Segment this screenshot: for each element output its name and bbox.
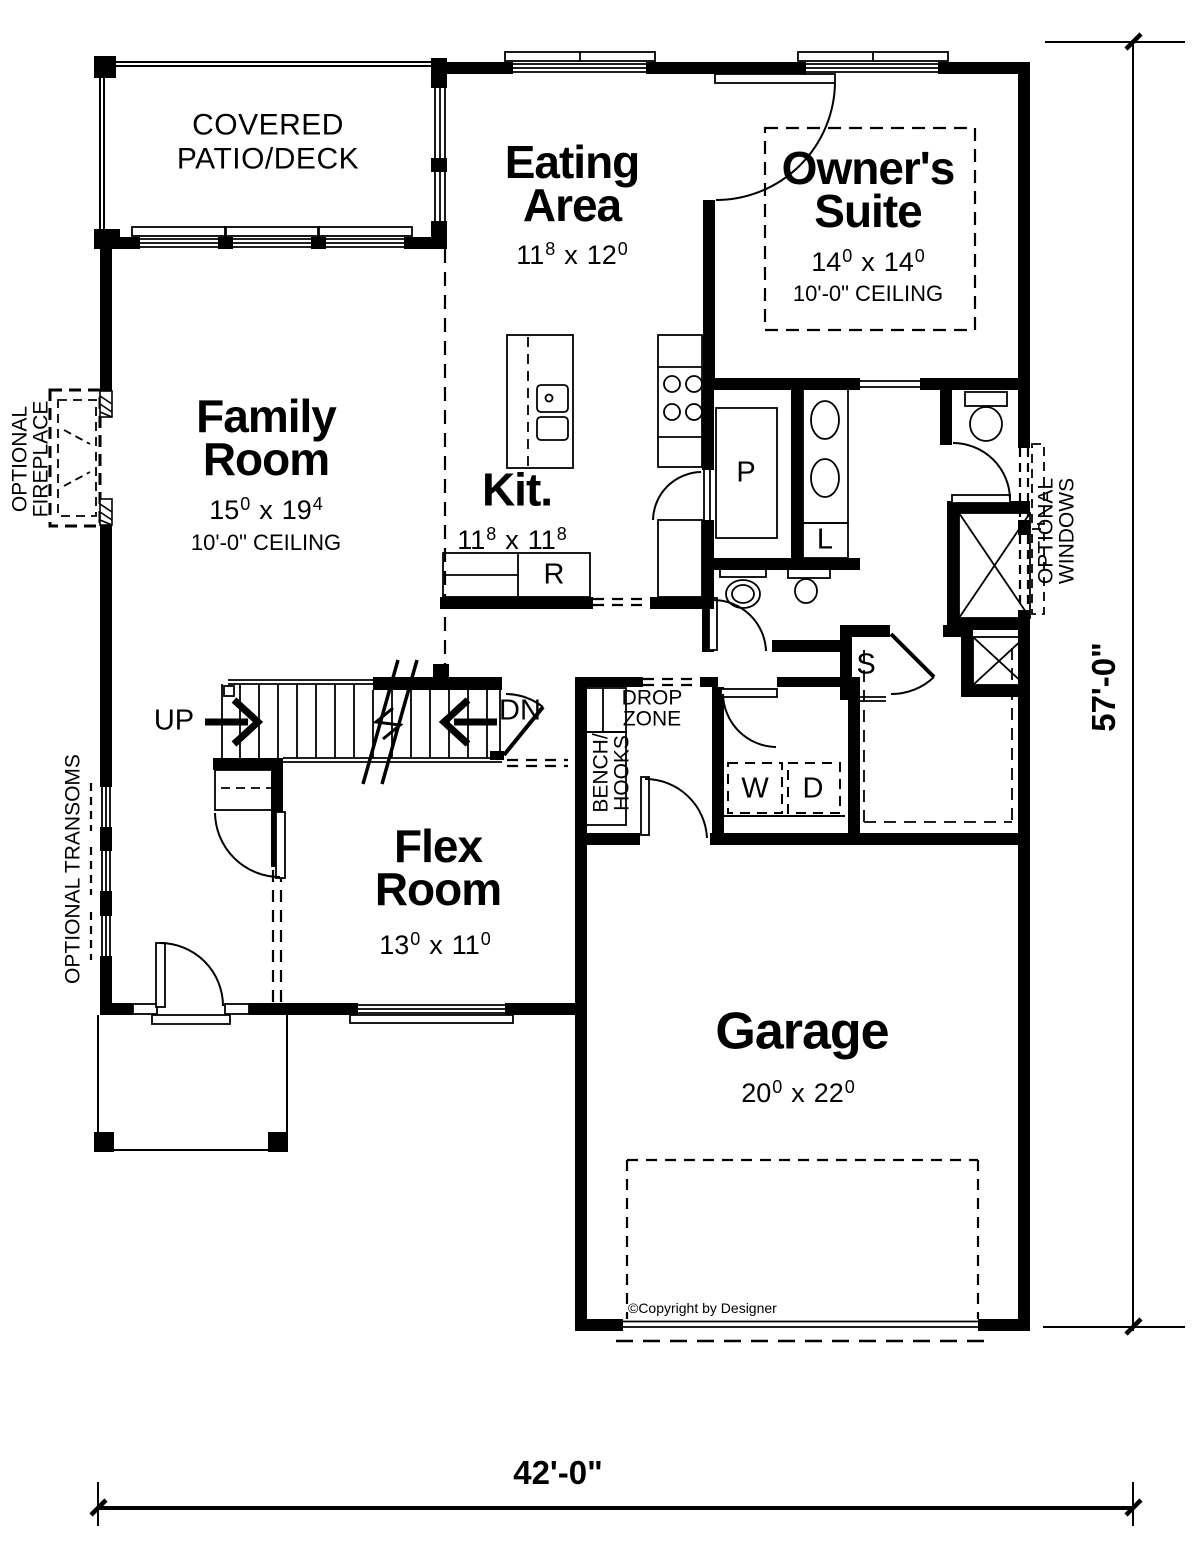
dim-sep: x (564, 240, 578, 270)
dim-value: 14 (884, 247, 914, 277)
linen-label: L (817, 524, 833, 557)
dim-sup: 0 (772, 1077, 782, 1097)
dim-sup: 8 (557, 524, 567, 544)
fireplace-hatch (100, 391, 112, 525)
staircase (215, 680, 502, 810)
room-dims-flex: 130x110 (379, 929, 491, 961)
shelf-label: S (856, 649, 875, 682)
kitchen-south-wall (440, 597, 593, 609)
optional-transoms-label: OPTIONAL TRANSOMS (62, 754, 83, 984)
drop-zone-label: DROP ZONE (622, 688, 683, 731)
dim-sup: 0 (240, 494, 250, 514)
kitchen-south-wall2 (650, 597, 714, 609)
dryer-label: D (803, 773, 824, 806)
stairs-down-label: DN (499, 695, 541, 728)
optional-windows-label: OPTIONAL WINDOWS (1036, 460, 1079, 603)
room-label-eating: Eating Area (505, 141, 640, 227)
copyright-notice: ©Copyright by Designer (628, 1300, 777, 1316)
stairs-up-label: UP (154, 705, 194, 738)
dashed-elements (50, 128, 1044, 1341)
overall-width-dimension: 42'-0" (513, 1454, 603, 1492)
room-dims-eating: 118x120 (516, 239, 628, 271)
dim-value: 19 (282, 495, 312, 525)
room-label-family: Family Room (196, 395, 336, 481)
dim-sep: x (791, 1078, 805, 1108)
dim-sup: 0 (618, 239, 628, 259)
dim-sep: x (429, 930, 443, 960)
dim-value: 14 (811, 247, 841, 277)
dim-value: 11 (516, 240, 544, 270)
dim-value: 13 (379, 930, 409, 960)
dim-sup: 0 (481, 929, 491, 949)
dim-value: 22 (814, 1078, 844, 1108)
kitchen-island (507, 335, 573, 468)
down-arrow (444, 700, 497, 744)
room-dims-owner-suite: 140x140 (811, 246, 925, 278)
room-dims-kitchen: 118x118 (457, 524, 567, 556)
optional-fireplace-label: OPTIONAL FIREPLACE (10, 401, 53, 518)
dim-sup: 8 (545, 239, 555, 259)
up-arrow (205, 700, 258, 744)
room-label-kitchen: Kit. (482, 468, 552, 511)
dim-value: 11 (452, 930, 480, 960)
washer-label: W (741, 773, 768, 806)
dim-value: 11 (528, 525, 556, 555)
room-ceiling-owner-suite: 10'-0" CEILING (793, 281, 943, 307)
dim-sep: x (259, 495, 273, 525)
dim-value: 12 (587, 240, 617, 270)
bench-hooks-label: BENCH/ HOOKS (591, 733, 634, 812)
dim-value: 11 (457, 525, 485, 555)
room-dims-family: 150x194 (209, 494, 323, 526)
dim-sup: 8 (486, 524, 496, 544)
floor-plan: COVERED PATIO/DECK Eating Area 118x120 O… (0, 0, 1200, 1556)
pantry-label: P (736, 457, 755, 490)
patio-outline (98, 62, 447, 1150)
dim-sup: 4 (313, 494, 323, 514)
dim-value: 20 (741, 1078, 771, 1108)
room-label-patio: COVERED PATIO/DECK (177, 108, 359, 175)
range-label: R (544, 559, 565, 592)
dim-sep: x (861, 247, 875, 277)
room-label-flex: Flex Room (375, 825, 501, 911)
room-label-garage: Garage (715, 1008, 888, 1057)
overall-depth-dimension: 57'-0" (1085, 642, 1123, 732)
dim-sup: 0 (915, 246, 925, 266)
hall-bath-fixtures (720, 564, 830, 608)
room-ceiling-family: 10'-0" CEILING (191, 530, 341, 556)
dim-sup: 0 (845, 1077, 855, 1097)
dim-value: 15 (209, 495, 239, 525)
dim-sep: x (505, 525, 519, 555)
room-label-owner-suite: Owner's Suite (782, 147, 955, 233)
dim-sup: 0 (842, 246, 852, 266)
room-dims-garage: 200x220 (741, 1077, 855, 1109)
dim-sup: 0 (410, 929, 420, 949)
